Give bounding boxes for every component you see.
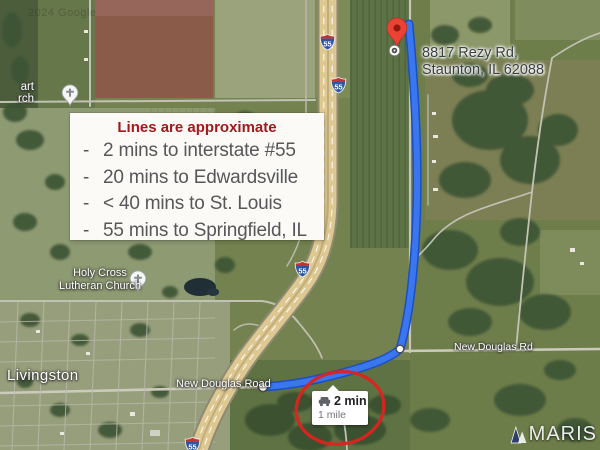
item-text: 20 mins to Edwardsville: [103, 165, 324, 192]
interstate-55-shield: 55: [330, 76, 347, 94]
info-box-item: - 55 mins to Springfield, IL: [70, 218, 324, 245]
info-box-item: - < 40 mins to St. Louis: [70, 191, 324, 218]
google-copyright-watermark: 2024 Google: [28, 7, 97, 19]
tooltip-pointer: [327, 385, 339, 391]
address-line1: 8817 Rezy Rd,: [422, 45, 544, 62]
church-pin-icon: [61, 83, 79, 107]
shield-number: 55: [323, 40, 331, 49]
info-box-item: - 20 mins to Edwardsville: [70, 165, 324, 192]
bullet-dash: -: [70, 138, 103, 165]
info-box: Lines are approximate - 2 mins to inters…: [70, 113, 324, 240]
church-label-partial: art rch: [0, 81, 34, 105]
church-label-partial-line1: art: [0, 81, 34, 93]
interstate-55-shield: 55: [319, 33, 336, 51]
shield-number: 55: [334, 83, 342, 92]
info-box-title: Lines are approximate: [70, 119, 324, 136]
pond: [184, 278, 219, 296]
town-label: Livingston: [7, 367, 79, 384]
car-icon: [318, 396, 331, 407]
interstate-55-shield: 55: [294, 260, 311, 278]
tooltip-duration: 2 min: [334, 394, 367, 408]
shield-number: 55: [188, 443, 196, 450]
maris-logo-icon: [510, 425, 527, 444]
address-line2: Staunton, IL 62088: [422, 62, 544, 79]
church-label-line1: Holy Cross: [40, 267, 160, 280]
shield-number: 55: [298, 267, 306, 276]
maris-watermark: MARIS: [510, 423, 597, 446]
church-label-line2: Lutheran Church: [40, 280, 160, 293]
bullet-dash: -: [70, 165, 103, 192]
exact-location-icon: [388, 44, 401, 57]
item-text: < 40 mins to St. Louis: [103, 191, 324, 218]
info-box-list: - 2 mins to interstate #55 - 20 mins to …: [70, 138, 324, 244]
tooltip-distance: 1 mile: [318, 409, 368, 421]
bullet-dash: -: [70, 218, 103, 245]
destination-address: 8817 Rezy Rd, Staunton, IL 62088: [422, 45, 544, 79]
info-box-item: - 2 mins to interstate #55: [70, 138, 324, 165]
interstate-55-shield: 55: [184, 436, 201, 450]
church-label: Holy Cross Lutheran Church: [40, 267, 160, 293]
map-screenshot: 55 55 55 55 art rch Holy Cross Lutheran …: [0, 0, 600, 450]
maris-text: MARIS: [529, 423, 597, 446]
route-waypoint-dot: [396, 345, 404, 353]
road-label-new-douglas-rd: New Douglas Rd: [454, 341, 533, 353]
bullet-dash: -: [70, 191, 103, 218]
route-tooltip: 2 min 1 mile: [312, 391, 368, 425]
item-text: 55 mins to Springfield, IL: [103, 218, 324, 245]
item-text: 2 mins to interstate #55: [103, 138, 324, 165]
road-label-new-douglas-road: New Douglas Road: [176, 378, 271, 390]
church-label-partial-line2: rch: [0, 93, 34, 105]
